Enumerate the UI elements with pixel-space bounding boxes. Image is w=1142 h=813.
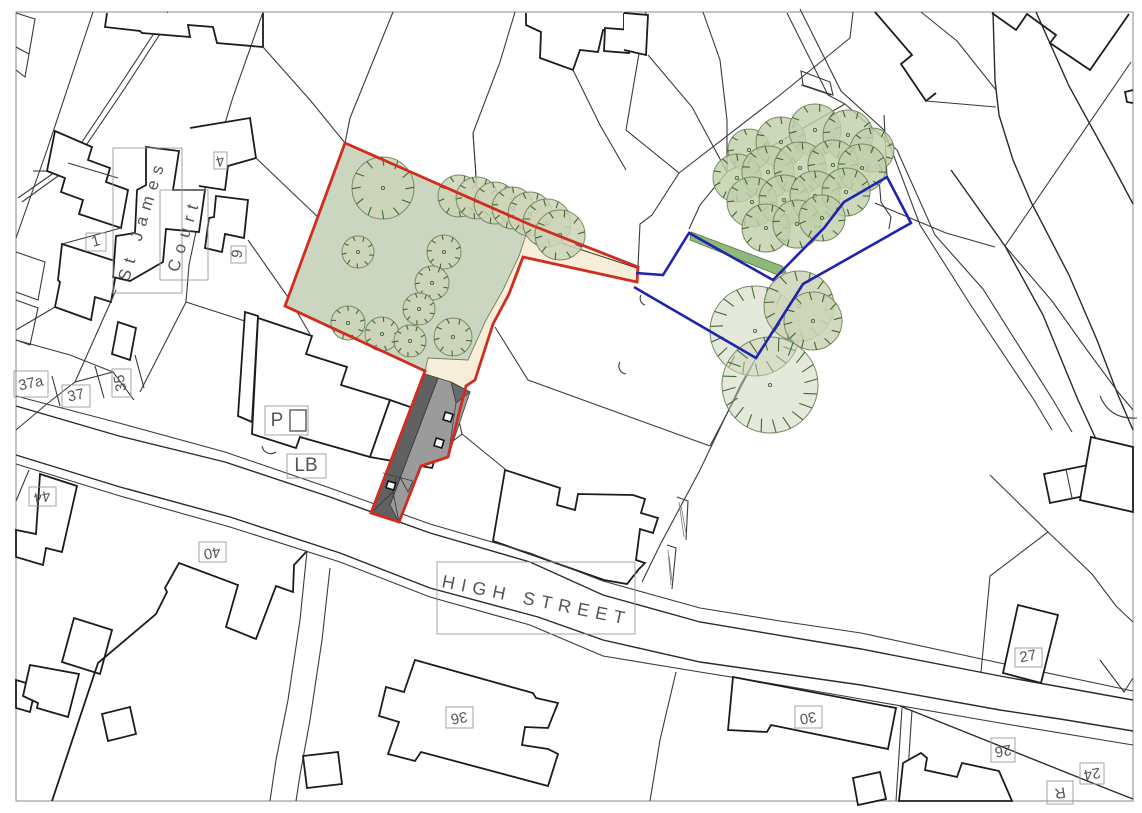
svg-text:27: 27 [1018, 647, 1037, 667]
svg-text:35: 35 [111, 373, 131, 392]
svg-text:24: 24 [1082, 764, 1101, 784]
svg-text:40: 40 [202, 543, 221, 563]
svg-text:LB: LB [294, 455, 317, 476]
svg-text:30: 30 [798, 708, 817, 728]
svg-text:P: P [271, 410, 284, 431]
svg-text:36: 36 [449, 708, 468, 728]
svg-text:37: 37 [66, 385, 86, 405]
svg-text:26: 26 [993, 741, 1012, 761]
svg-text:44: 44 [32, 487, 51, 507]
